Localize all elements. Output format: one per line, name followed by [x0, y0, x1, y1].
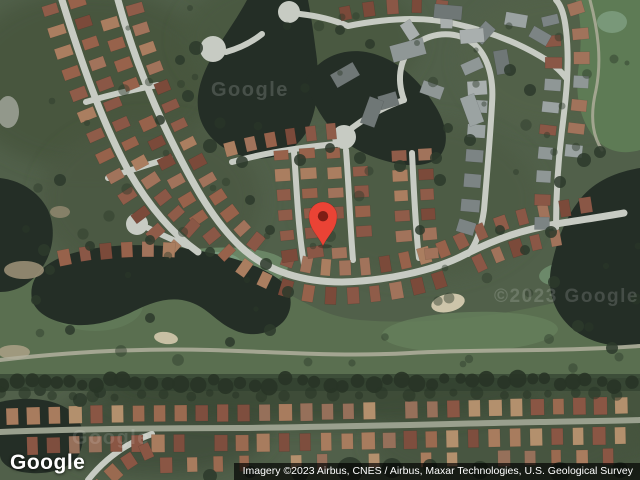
house-roof: [174, 405, 187, 421]
house-roof: [154, 405, 166, 422]
house-roof: [213, 456, 223, 472]
house-roof: [463, 173, 481, 188]
house-roof: [300, 433, 311, 451]
house-roof: [89, 436, 102, 452]
house-roof: [275, 168, 291, 181]
house-roof: [151, 434, 165, 452]
house-roof: [256, 433, 269, 451]
house-roof: [418, 169, 434, 181]
house-roof: [510, 428, 521, 447]
house-roof: [26, 407, 40, 425]
satellite-map[interactable]: Google©2023 GoogleGoogle Google Imagery …: [0, 0, 640, 480]
house-roof: [425, 431, 437, 448]
house-roof: [341, 433, 353, 449]
house-roof: [405, 401, 418, 418]
house-roof: [259, 404, 270, 421]
house-roof: [339, 260, 351, 275]
house-roof: [510, 399, 522, 417]
house-roof: [214, 435, 227, 451]
house-roof: [394, 190, 408, 202]
cul-de-sac: [278, 1, 300, 23]
pin-shadow: [318, 244, 332, 248]
house-roof: [395, 230, 412, 243]
house-roof: [460, 199, 480, 213]
pin-body: [309, 202, 337, 246]
house-roof: [421, 208, 436, 220]
house-roof: [121, 242, 133, 258]
house-roof: [322, 404, 334, 420]
house-roof: [133, 406, 145, 422]
house-roof: [328, 187, 344, 198]
house-roof: [573, 428, 584, 446]
google-logo[interactable]: Google: [10, 451, 85, 475]
house-roof: [542, 101, 560, 113]
house-roof: [386, 0, 399, 15]
house-roof: [567, 122, 585, 134]
house-roof: [111, 405, 123, 422]
house-roof: [302, 188, 318, 199]
house-roof: [195, 405, 208, 421]
house-roof: [110, 436, 122, 452]
house-roof: [326, 123, 337, 140]
house-roof: [534, 194, 551, 206]
house-roof: [544, 78, 561, 91]
house-roof: [530, 428, 543, 446]
house-roof: [359, 257, 371, 275]
house-roof: [363, 402, 375, 419]
house-roof: [279, 433, 290, 452]
house-roof: [187, 457, 198, 472]
house-roof: [278, 209, 293, 221]
house-roof: [447, 400, 460, 417]
house-roof: [301, 284, 315, 303]
house-roof: [327, 167, 342, 180]
house-roof: [576, 450, 588, 464]
house-roof: [69, 406, 83, 424]
house-roof: [217, 404, 228, 421]
house-roof: [615, 427, 626, 444]
house-roof: [530, 399, 544, 415]
house-roof: [361, 432, 375, 449]
house-roof: [446, 430, 459, 448]
house-roof: [594, 397, 608, 415]
house-roof: [236, 435, 249, 451]
house-roof: [574, 52, 590, 65]
house-roof: [573, 398, 586, 415]
house-roof: [237, 404, 250, 421]
house-roof: [427, 401, 438, 417]
building-roof: [459, 28, 484, 44]
house-roof: [553, 399, 564, 415]
house-roof: [468, 400, 480, 417]
house-roof: [379, 255, 392, 273]
house-roof: [48, 407, 60, 424]
house-roof: [468, 429, 479, 447]
house-roof: [579, 196, 593, 213]
house-roof: [281, 249, 298, 263]
house-roof: [356, 225, 372, 237]
house-roof: [300, 403, 313, 421]
house-roof: [391, 150, 406, 162]
house-roof: [571, 99, 588, 112]
house-roof: [174, 434, 185, 452]
house-roof: [412, 0, 422, 13]
house-roof: [489, 400, 503, 417]
house-roof: [488, 429, 500, 447]
house-roof: [389, 281, 404, 300]
location-marker[interactable]: [303, 201, 343, 249]
house-roof: [420, 188, 434, 200]
house-roof: [572, 27, 589, 40]
house-roof: [536, 170, 551, 183]
house-roof: [347, 287, 360, 304]
house-roof: [300, 167, 317, 179]
house-roof: [321, 433, 332, 451]
building-roof: [433, 4, 462, 20]
house-roof: [551, 428, 563, 445]
house-roof: [545, 57, 562, 68]
house-roof: [403, 431, 417, 450]
house-roof: [160, 457, 173, 473]
house-roof: [274, 150, 289, 161]
house-roof: [325, 287, 337, 305]
house-roof: [383, 432, 396, 448]
house-roof: [362, 1, 375, 17]
house-roof: [285, 128, 297, 145]
house-roof: [394, 210, 410, 222]
house-roof: [90, 405, 103, 423]
cul-de-sac: [200, 36, 226, 62]
house-roof: [465, 149, 483, 163]
house-roof: [343, 403, 354, 419]
house-roof: [369, 285, 381, 302]
house-roof: [424, 247, 439, 259]
house-roof: [99, 243, 112, 260]
house-roof: [320, 259, 331, 276]
house-roof: [279, 404, 293, 421]
imagery-attribution: Imagery ©2023 Airbus, CNES / Airbus, Max…: [234, 463, 640, 480]
pin-core: [318, 211, 328, 221]
house-roof: [277, 189, 291, 201]
house-roof: [355, 205, 371, 217]
house-roof: [305, 126, 317, 142]
house-roof: [6, 408, 19, 425]
house-roof: [592, 427, 605, 445]
house-roof: [280, 230, 295, 241]
